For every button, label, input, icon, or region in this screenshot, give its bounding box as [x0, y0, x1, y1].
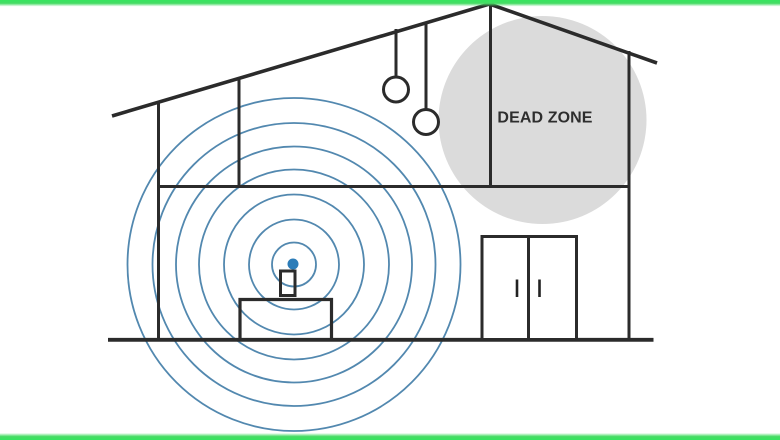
- svg-text:DEAD ZONE: DEAD ZONE: [497, 110, 592, 127]
